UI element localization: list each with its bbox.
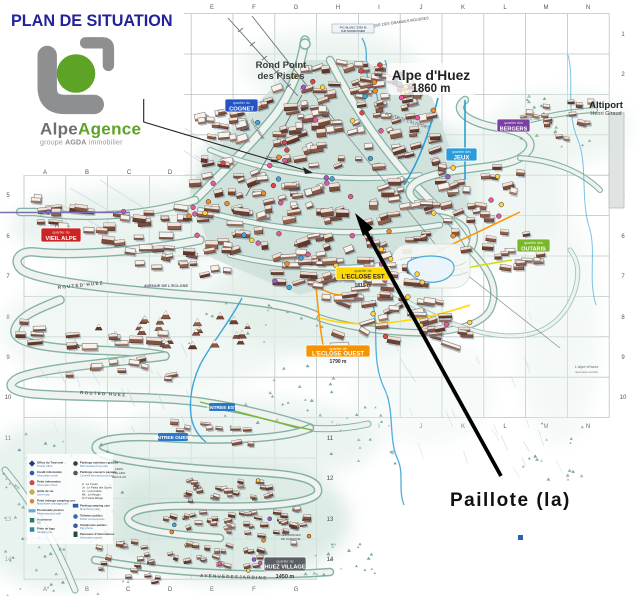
svg-text:Information credit: Information credit xyxy=(37,473,58,477)
svg-text:F: F xyxy=(252,587,256,593)
svg-text:Lift: Lift xyxy=(37,521,41,525)
svg-text:12: 12 xyxy=(327,476,334,482)
svg-text:quartier du: quartier du xyxy=(52,231,69,235)
svg-text:M: M xyxy=(544,5,549,11)
svg-text:Pay phone: Pay phone xyxy=(80,526,93,530)
svg-text:D: D xyxy=(168,587,173,593)
svg-text:Motorhome drainage point: Motorhome drainage point xyxy=(37,502,69,506)
svg-text:Motorhome park: Motorhome park xyxy=(80,507,100,511)
svg-text:L'ECLOSE OUEST: L'ECLOSE OUEST xyxy=(312,352,364,358)
svg-text:Public conveniences: Public conveniences xyxy=(80,517,105,521)
svg-text:Rond Point: Rond Point xyxy=(256,60,307,71)
svg-text:14: 14 xyxy=(327,557,334,563)
svg-text:COGNET: COGNET xyxy=(229,107,254,113)
svg-text:L'alpe d'huez: L'alpe d'huez xyxy=(575,364,598,369)
svg-text:AlpeAgence: AlpeAgence xyxy=(40,120,141,139)
svg-text:Tourist Office: Tourist Office xyxy=(37,464,53,468)
svg-text:quartier des: quartier des xyxy=(452,150,471,154)
svg-text:L'ECLOSE EST: L'ECLOSE EST xyxy=(341,275,384,281)
svg-text:Altiport: Altiport xyxy=(589,100,624,111)
svg-text:13: 13 xyxy=(327,517,334,523)
svg-text:quartier du: quartier du xyxy=(233,101,250,105)
svg-text:Henri Giraud: Henri Giraud xyxy=(590,111,621,117)
svg-text:SUR MARMONNIER: SUR MARMONNIER xyxy=(341,29,365,33)
svg-text:Alpe d'Huez: Alpe d'Huez xyxy=(392,68,471,83)
svg-text:ENTREE EST: ENTREE EST xyxy=(207,405,237,411)
svg-text:1815 m: 1815 m xyxy=(355,283,373,289)
svg-text:Sledging run: Sledging run xyxy=(37,530,53,534)
svg-text:1860 m: 1860 m xyxy=(411,83,450,95)
svg-text:B: B xyxy=(85,587,89,593)
svg-text:G: G xyxy=(294,5,299,11)
svg-text:E: E xyxy=(210,5,214,11)
svg-text:ENTREE OUEST: ENTREE OUEST xyxy=(154,435,191,441)
svg-text:quartier de: quartier de xyxy=(354,269,371,273)
svg-text:D: D xyxy=(168,170,173,176)
svg-text:Level map: Level map xyxy=(37,492,50,496)
svg-text:quartier de: quartier de xyxy=(276,560,293,564)
svg-text:PLAN DE SITUATION: PLAN DE SITUATION xyxy=(11,12,173,30)
svg-text:CL : La Fontaine: CL : La Fontaine xyxy=(82,489,102,493)
svg-text:DE SARENNE: DE SARENNE xyxy=(281,537,301,541)
svg-text:O-V Visas Mirage: O-V Visas Mirage xyxy=(82,496,104,500)
svg-text:reservation centrale: reservation centrale xyxy=(575,370,598,374)
svg-text:JEUX: JEUX xyxy=(454,156,470,162)
svg-text:quartier des: quartier des xyxy=(524,241,543,245)
svg-text:Pedestrianized walk: Pedestrianized walk xyxy=(37,511,62,515)
svg-text:C: C xyxy=(127,170,132,176)
svg-text:N: N xyxy=(586,424,590,430)
svg-text:A: A xyxy=(43,170,47,176)
svg-text:HUEZ VILLAGE: HUEZ VILLAGE xyxy=(264,565,305,571)
svg-text:quartier de: quartier de xyxy=(329,347,346,351)
svg-text:des Pistes: des Pistes xyxy=(258,71,305,82)
svg-text:1790 m: 1790 m xyxy=(330,359,348,365)
svg-text:Both sheltered car park: Both sheltered car park xyxy=(80,464,108,468)
svg-text:Covered fee-paying car park: Covered fee-paying car park xyxy=(80,473,115,477)
svg-text:F: F xyxy=(252,5,256,11)
svg-text:H : Le Coulet: H : Le Coulet xyxy=(82,482,98,486)
svg-text:Information Point: Information Point xyxy=(37,483,58,487)
svg-text:J: J xyxy=(420,5,423,11)
svg-text:H: H xyxy=(336,5,340,11)
svg-text:E: E xyxy=(210,587,214,593)
svg-text:quartier des: quartier des xyxy=(504,121,523,125)
svg-text:Je : Le Palais des Sports: Je : Le Palais des Sports xyxy=(82,486,112,490)
svg-text:OUTARIS: OUTARIS xyxy=(521,247,546,253)
svg-text:G: G xyxy=(294,587,299,593)
svg-text:AVENUE DE L'ECLOSE: AVENUE DE L'ECLOSE xyxy=(144,283,188,288)
svg-text:Mk : Le Morgan: Mk : Le Morgan xyxy=(82,493,101,497)
svg-text:PIC BLANC 3330 M: PIC BLANC 3330 M xyxy=(340,26,367,30)
svg-text:N: N xyxy=(586,5,590,11)
svg-text:C: C xyxy=(126,587,131,593)
svg-text:Paillote (la): Paillote (la) xyxy=(450,490,571,511)
svg-text:11: 11 xyxy=(327,436,334,442)
svg-text:BERGERS: BERGERS xyxy=(500,127,528,133)
svg-text:VIEIL ALPE: VIEIL ALPE xyxy=(45,236,76,242)
svg-text:K: K xyxy=(461,5,465,11)
svg-text:RECULAS: RECULAS xyxy=(112,475,126,479)
svg-text:groupe AGDA immobilier: groupe AGDA immobilier xyxy=(40,140,123,147)
svg-text:Information panels: Information panels xyxy=(80,535,103,539)
svg-text:1450 m: 1450 m xyxy=(276,574,295,580)
svg-text:B: B xyxy=(85,170,89,176)
svg-text:10: 10 xyxy=(620,395,627,401)
svg-text:10: 10 xyxy=(5,395,12,401)
